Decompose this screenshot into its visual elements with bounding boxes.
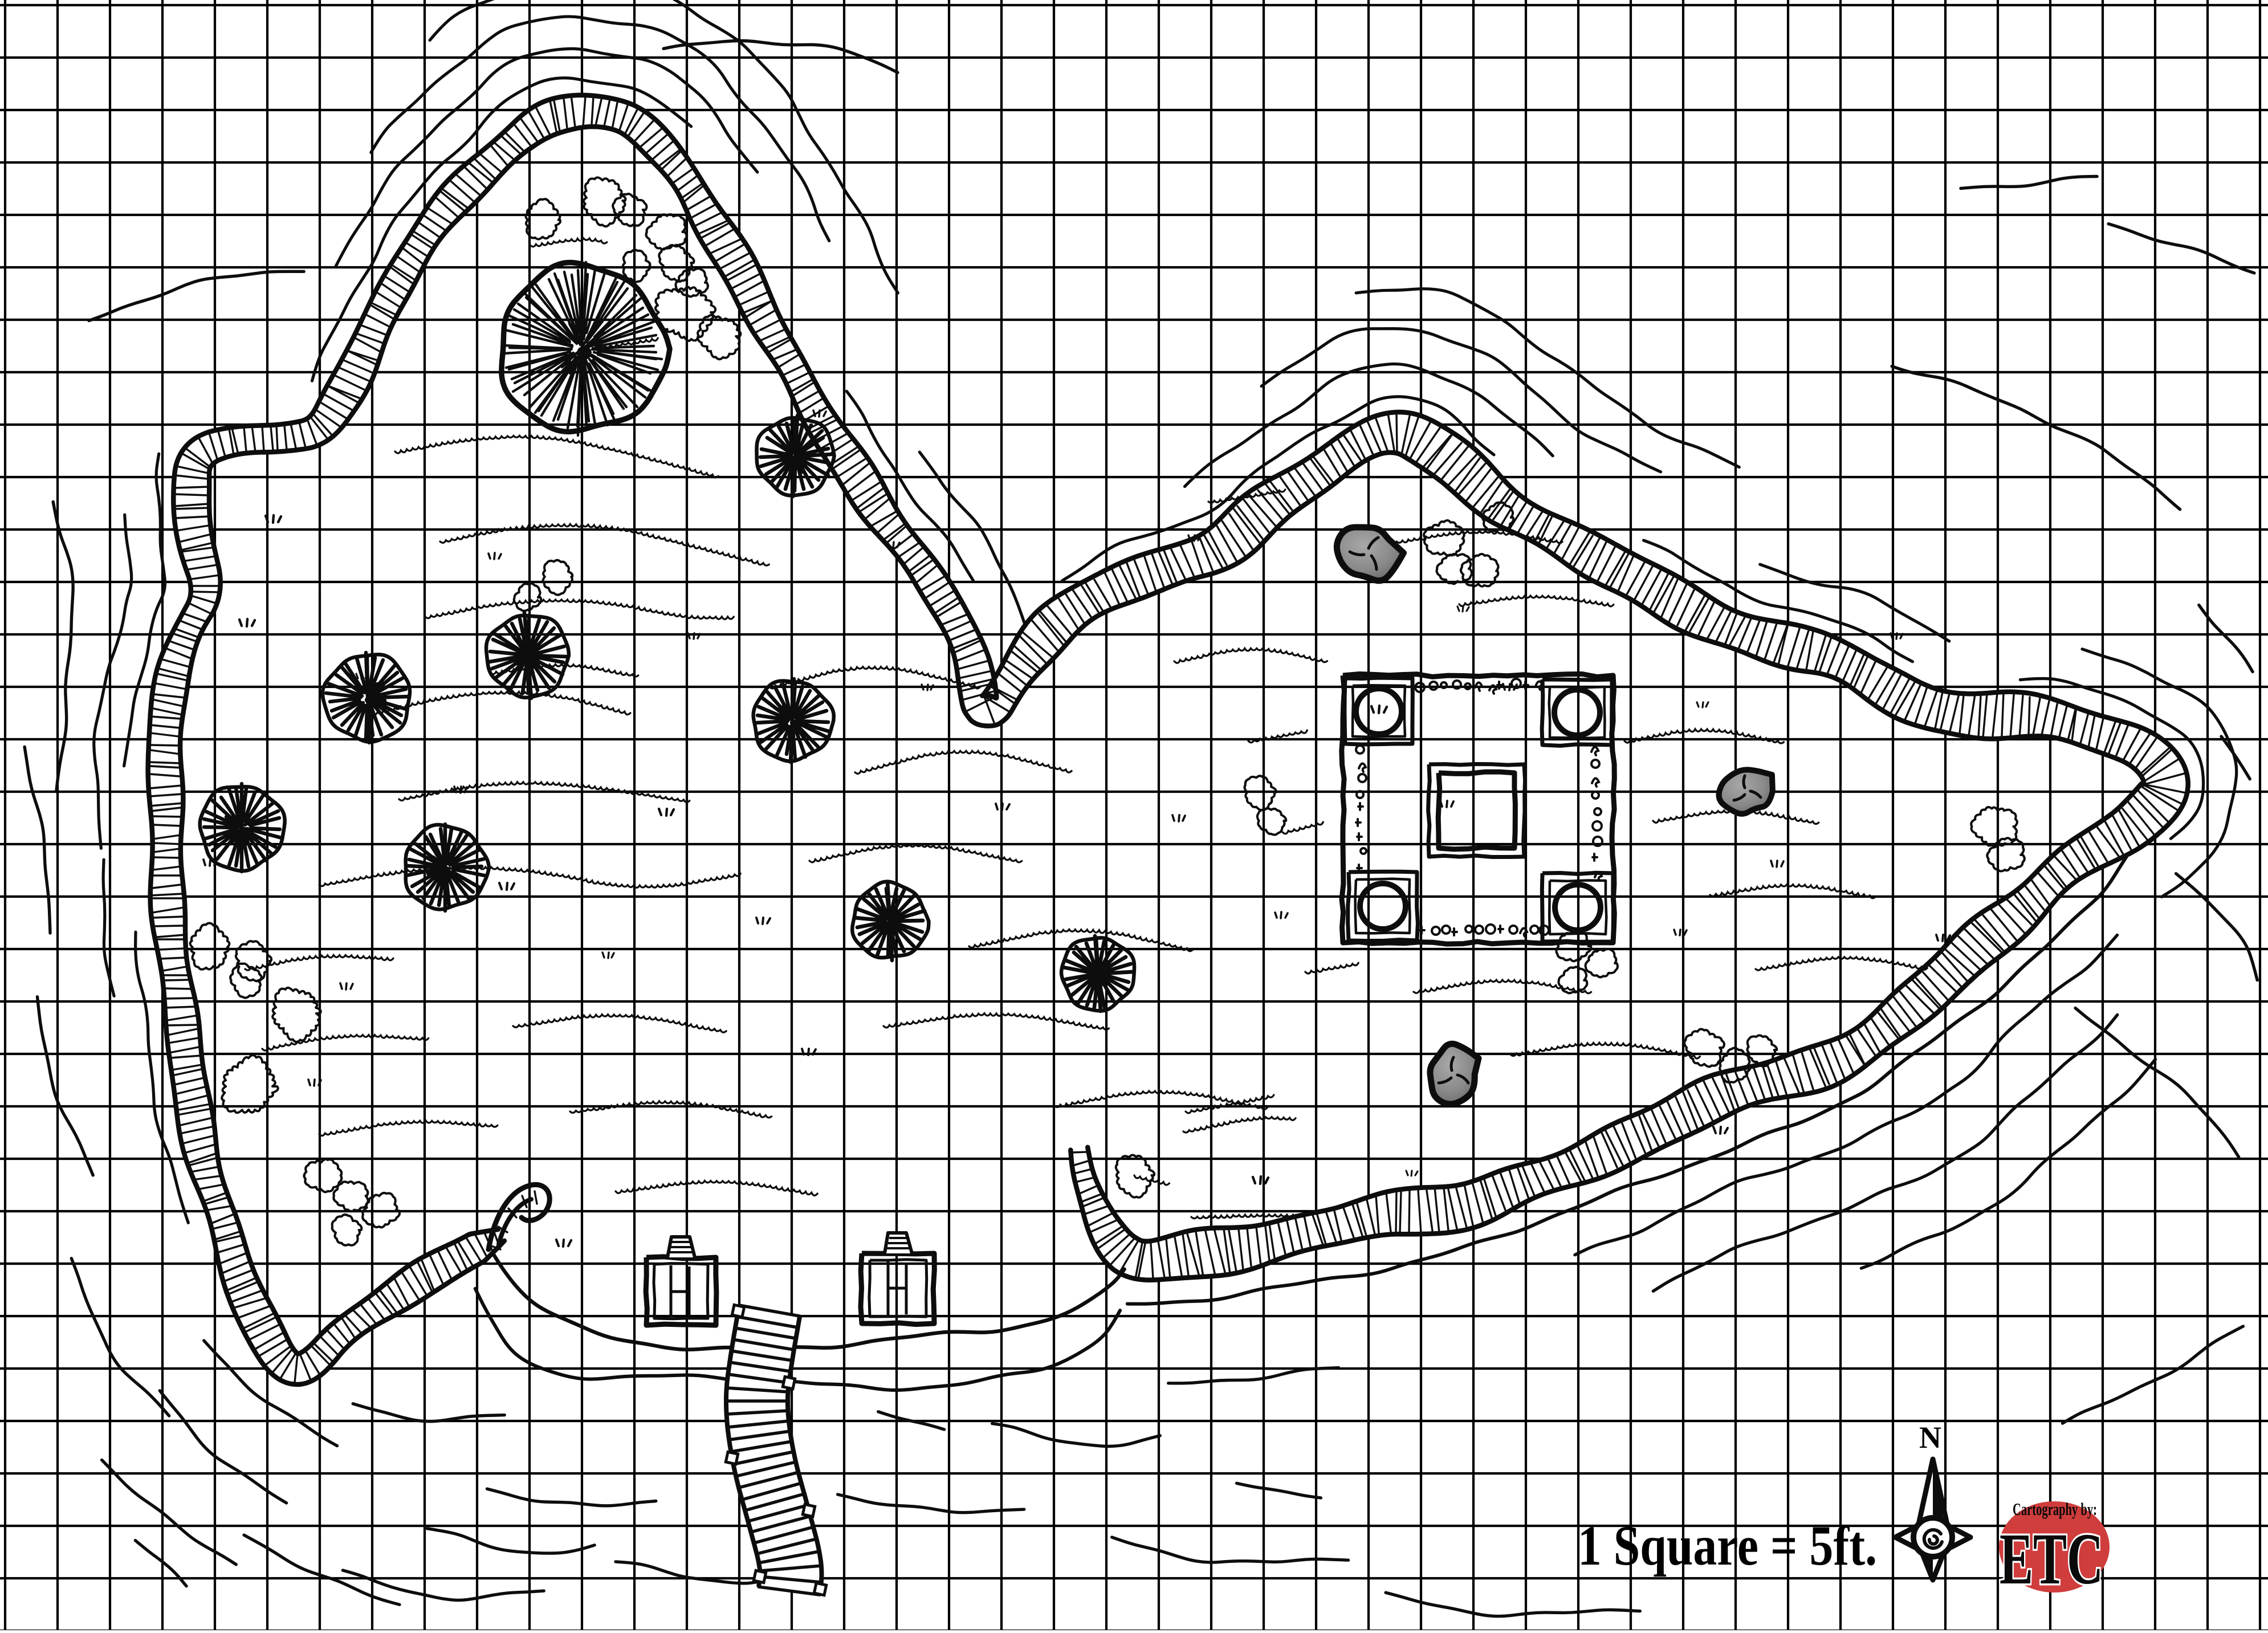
svg-text:ETC: ETC <box>2000 1518 2103 1599</box>
svg-text:1 Square = 5ft.: 1 Square = 5ft. <box>1578 1514 1877 1577</box>
svg-text:N: N <box>1919 1420 1941 1455</box>
svg-text:Cartography by:: Cartography by: <box>2013 1499 2097 1519</box>
